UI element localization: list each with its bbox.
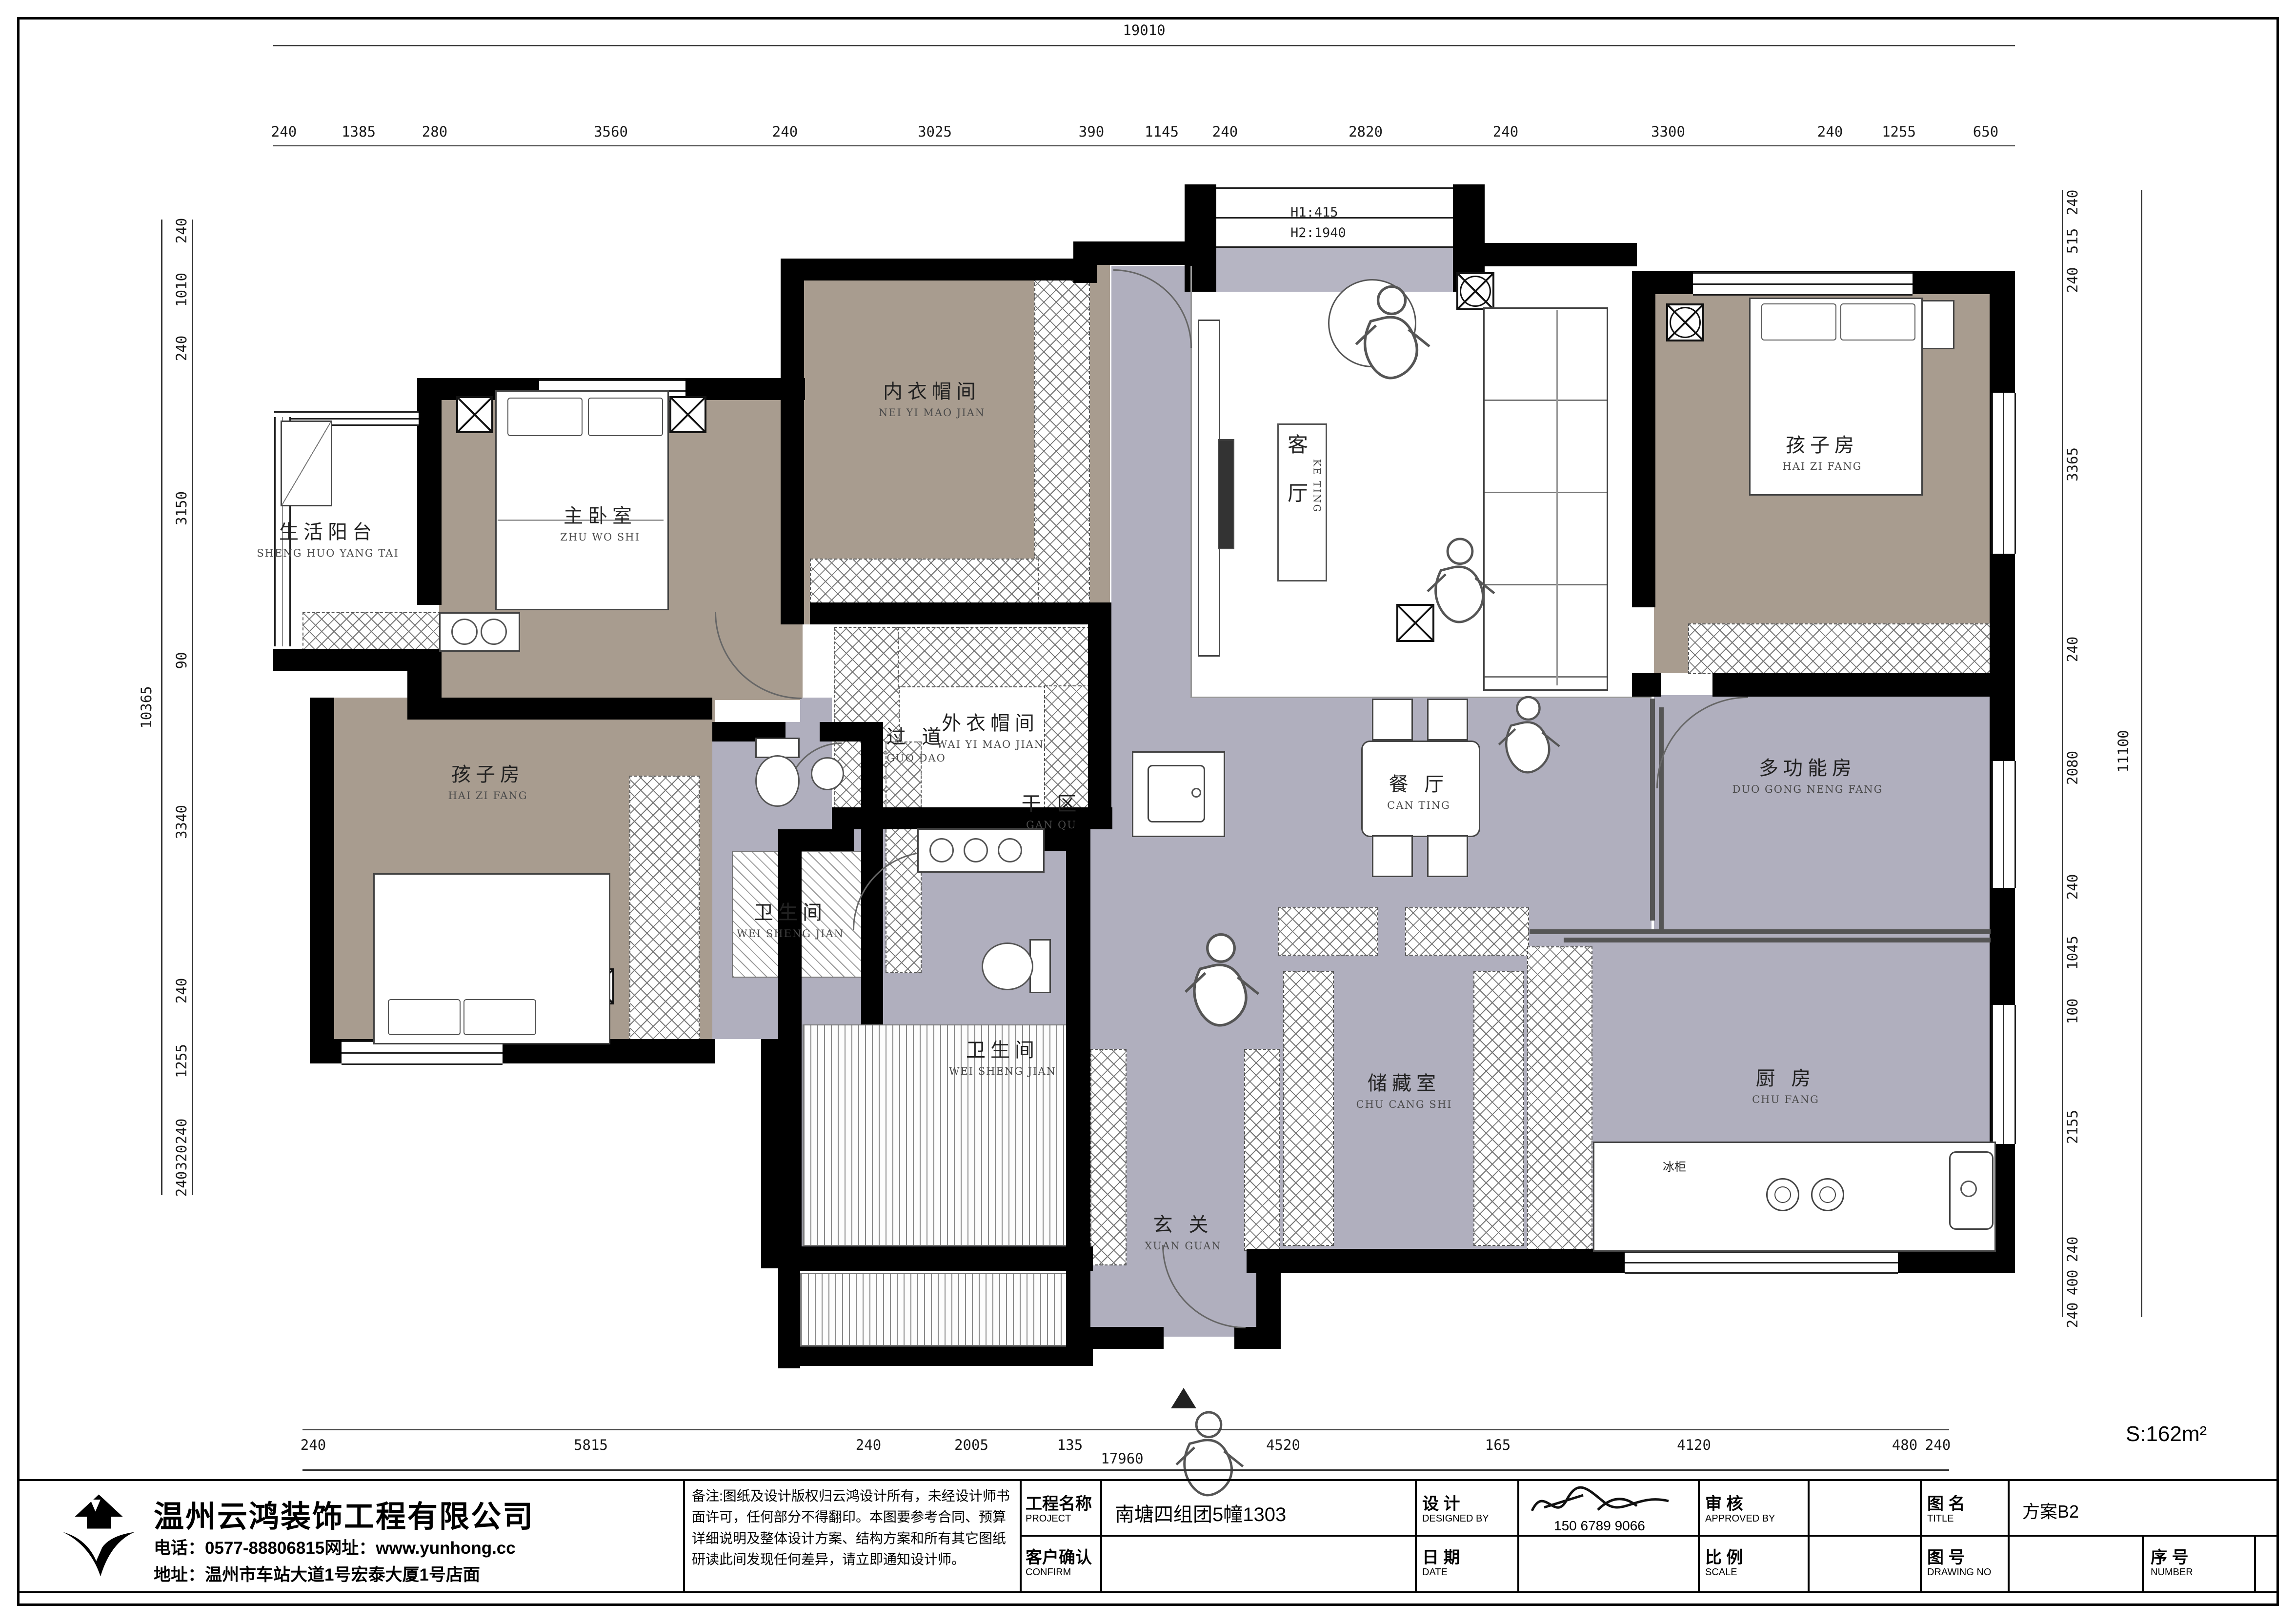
room-label: 过 道GUO DAO <box>886 721 947 764</box>
dimension-line <box>2062 190 2063 1317</box>
balcony-cabinet <box>281 421 332 506</box>
room-label: 干 区GAN QU <box>1022 788 1082 831</box>
faucet <box>1960 1181 1977 1197</box>
dimension-value: 90 <box>173 652 190 669</box>
wall-segment <box>1632 271 1655 607</box>
circle-cross-symbol <box>1456 272 1494 310</box>
dimension-line <box>192 220 193 1195</box>
dimension-value: 2155 <box>2064 1110 2081 1144</box>
dimension-value: 4520 <box>1266 1437 1300 1453</box>
room-label: 餐 厅CAN TING <box>1387 768 1450 811</box>
approve-label-en: APPROVED BY <box>1705 1513 1775 1524</box>
room-name: 储藏室 <box>1356 1067 1452 1096</box>
project-value: 南塘四组团5幢1303 <box>1115 1499 1286 1527</box>
room-name: 卫生间 <box>737 897 844 925</box>
room-pinyin: ZHU WO SHI <box>560 531 640 543</box>
person-figure <box>1483 693 1573 788</box>
room-pinyin: GUO DAO <box>886 752 947 764</box>
design-label: 设 计 <box>1422 1490 1460 1514</box>
cabinet-hatch <box>1473 971 1524 1246</box>
dimension-value: 240 <box>271 123 297 140</box>
sliding-door <box>1564 938 1991 942</box>
wall-segment <box>1247 1249 1539 1273</box>
scale-label: 比 例 <box>1705 1544 1743 1568</box>
room-pinyin: CAN TING <box>1387 800 1450 811</box>
dimension-value: 320 <box>173 1145 190 1170</box>
window <box>1625 1251 1898 1274</box>
dimension-value: 3150 <box>173 491 190 525</box>
company-address: 地址：温州市车站大道1号宏泰大厦1号店面 <box>154 1561 480 1586</box>
dimension-line <box>273 145 2015 146</box>
confirm-label-en: CONFIRM <box>1026 1567 1071 1578</box>
company-logo <box>56 1490 141 1581</box>
wall-segment <box>442 698 712 720</box>
dimension-value: 240 <box>1212 123 1238 140</box>
room-label: 生活阳台SHENG HUO YANG TAI <box>257 516 399 559</box>
dimension-value: 3560 <box>594 123 628 140</box>
dimension-value: 240 <box>2064 267 2081 293</box>
room-label: 孩子房HAI ZI FANG <box>1782 429 1862 472</box>
room-pinyin: XUAN GUAN <box>1145 1240 1222 1252</box>
confirm-label: 客户确认 <box>1026 1544 1092 1568</box>
room-pinyin: KE TING <box>1311 459 1323 514</box>
dining-chair <box>1372 699 1413 741</box>
cabinet-hatch <box>1278 907 1378 956</box>
person-figure <box>1168 929 1273 1044</box>
window <box>1992 1005 2016 1144</box>
room-pinyin: DUO GONG NENG FANG <box>1732 783 1883 795</box>
wall-segment <box>778 1246 1093 1271</box>
washer-drum <box>481 619 507 645</box>
pillow <box>463 999 536 1035</box>
tv-cabinet <box>1198 320 1220 657</box>
room-label-keting: 客 厅KE TING <box>1277 423 1327 581</box>
project-label: 工程名称 <box>1026 1490 1092 1514</box>
stove-burner <box>1811 1178 1844 1211</box>
nightstand <box>1921 300 1954 349</box>
dimension-value: 1255 <box>173 1044 190 1078</box>
wash-basin <box>811 757 844 790</box>
pillow <box>1840 303 1915 341</box>
window <box>1693 272 1913 296</box>
room-name: 孩子房 <box>1782 429 1862 458</box>
dimension-value: 1385 <box>342 123 376 140</box>
room-name: 卫生间 <box>949 1034 1056 1062</box>
cabinet-hatch <box>1405 907 1529 956</box>
dimension-value: 280 <box>422 123 447 140</box>
cabinet-hatch <box>810 559 1039 604</box>
dimension-value: 240 <box>173 218 190 243</box>
circle-cross-symbol <box>1666 303 1704 341</box>
window <box>1992 393 2016 554</box>
pillow <box>507 398 583 436</box>
dimension-value: 390 <box>1079 123 1104 140</box>
dimension-value: 165 <box>1485 1437 1511 1453</box>
room-label: 卫生间WEI SHENG JIAN <box>737 897 844 940</box>
floor-edge-line <box>1190 697 1652 698</box>
dimension-value: 1010 <box>173 273 190 307</box>
room-label: 储藏室CHU CANG SHI <box>1356 1067 1452 1110</box>
dimension-value: 240 <box>173 1171 190 1197</box>
room-pinyin: GAN QU <box>1022 819 1082 831</box>
dimension-value: 240 <box>2064 1302 2081 1328</box>
cabinet-hatch <box>1527 946 1592 1251</box>
dimension-line <box>161 220 162 1195</box>
room-name: 餐 厅 <box>1387 768 1450 797</box>
wall-segment <box>1632 673 1661 697</box>
basin <box>964 838 988 862</box>
pillow <box>1761 303 1836 341</box>
wall-segment <box>778 1346 1093 1366</box>
number-label-en: NUMBER <box>2151 1567 2193 1578</box>
wall-segment <box>1088 602 1111 829</box>
dimension-value: 4120 <box>1677 1437 1711 1453</box>
wall-segment <box>1483 243 1637 266</box>
stove-burner <box>1766 1178 1799 1211</box>
dimension-value: 480 <box>1892 1437 1917 1453</box>
bay-height-annotation-1: H1:415 <box>1290 205 1338 220</box>
room-pinyin: WEI SHENG JIAN <box>949 1065 1056 1077</box>
designer-signature <box>1525 1481 1676 1522</box>
drawingno-label: 图 号 <box>1927 1544 1965 1568</box>
room-label: 厨 房CHU FANG <box>1752 1062 1819 1105</box>
sliding-door <box>1659 707 1664 929</box>
cross-box-symbol <box>669 396 706 433</box>
door-handle <box>1191 788 1201 798</box>
date-label-en: DATE <box>1422 1567 1448 1578</box>
wall-segment <box>1185 184 1216 292</box>
designer-phone: 150 6789 9066 <box>1554 1518 1645 1534</box>
wall-segment <box>778 829 802 1271</box>
dimension-value: 240 <box>173 978 190 1003</box>
cabinet-hatch <box>302 612 441 651</box>
dimension-value: 11100 <box>2115 730 2132 772</box>
person-figure <box>1339 281 1444 398</box>
room-label: 玄 关XUAN GUAN <box>1145 1209 1222 1252</box>
title-value: 方案B2 <box>2022 1498 2079 1523</box>
dimension-value: 400 <box>2064 1270 2081 1295</box>
company-phone-web: 电话：0577-88806815网址：www.yunhong.cc <box>154 1534 516 1559</box>
dimension-value: 10365 <box>138 686 155 728</box>
entry-arrow <box>1171 1388 1196 1408</box>
dining-chair <box>1427 835 1468 877</box>
room-label: 卫生间WEI SHENG JIAN <box>949 1034 1056 1077</box>
wall-segment <box>1712 673 1993 697</box>
design-label-en: DESIGNED BY <box>1422 1513 1489 1524</box>
tv-screen <box>1218 439 1234 549</box>
notes-text: 备注:图纸及设计版权归云鸿设计所有，未经设计师书面许可，任何部分不得翻印。本图要… <box>692 1485 1014 1570</box>
dimension-value: 240 <box>2064 637 2081 662</box>
wall-segment <box>417 378 442 605</box>
room-name: 干 区 <box>1022 788 1082 816</box>
room-name: 厨 房 <box>1752 1062 1819 1091</box>
circle-icon <box>1460 276 1491 307</box>
dimension-value: 240 <box>1817 123 1843 140</box>
dimension-value: 3025 <box>918 123 952 140</box>
toilet-bowl <box>755 755 800 807</box>
wall-segment <box>407 649 442 720</box>
dimension-value: 2080 <box>2064 751 2081 785</box>
dimension-value: 1145 <box>1145 123 1179 140</box>
wall-segment <box>1066 829 1090 1271</box>
dimension-value: 2820 <box>1349 123 1383 140</box>
room-label: 多功能房DUO GONG NENG FANG <box>1732 752 1883 795</box>
room-name: 孩子房 <box>448 759 527 787</box>
room-name: 主卧室 <box>560 500 640 528</box>
room-pinyin: SHENG HUO YANG TAI <box>257 547 399 559</box>
dimension-value: 17960 <box>1101 1450 1143 1467</box>
toilet-bowl <box>982 942 1033 990</box>
scale-label-en: SCALE <box>1705 1567 1737 1578</box>
dimension-value: 3340 <box>173 805 190 839</box>
basin <box>998 838 1022 862</box>
dimension-value: 240 <box>856 1437 881 1453</box>
dimension-value: 3300 <box>1651 123 1685 140</box>
room-pinyin: WAI YI MAO JIAN <box>937 739 1044 750</box>
dimension-value: 240 <box>1493 123 1518 140</box>
bay-height-annotation-2: H2:1940 <box>1290 225 1346 240</box>
wall-segment <box>800 829 854 851</box>
room-pinyin: NEI YI MAO JIAN <box>879 407 985 419</box>
cabinet-hatch <box>1244 1049 1280 1251</box>
dimension-value: 5815 <box>574 1437 608 1453</box>
room-name: 玄 关 <box>1145 1209 1222 1237</box>
pillow <box>588 398 663 436</box>
dimension-value: 1255 <box>1882 123 1916 140</box>
tv-wall-line <box>1190 266 1192 698</box>
dining-chair <box>1427 699 1468 741</box>
wall-segment <box>1066 1327 1164 1349</box>
wall-segment <box>1234 1327 1281 1349</box>
cross-box-symbol <box>456 396 493 433</box>
wall-segment <box>273 649 420 671</box>
room-pinyin: CHU FANG <box>1752 1094 1819 1105</box>
dimension-value: 240 <box>1925 1437 1951 1453</box>
circle-icon <box>1670 307 1701 338</box>
louver-balcony <box>800 1273 1090 1346</box>
dimension-line <box>302 1469 1949 1471</box>
wall-segment <box>781 259 1095 281</box>
room-name: 多功能房 <box>1732 752 1883 781</box>
title-label-en: TITLE <box>1927 1513 1954 1524</box>
dimension-line <box>2141 190 2142 1317</box>
dimension-value: 1045 <box>2064 936 2081 970</box>
dining-chair <box>1372 835 1413 877</box>
dimension-value: 2005 <box>954 1437 988 1453</box>
number-label: 序 号 <box>2151 1544 2188 1568</box>
dimension-value: 515 <box>2064 228 2081 254</box>
basin <box>929 838 954 862</box>
cabinet-hatch <box>1688 623 1993 674</box>
window <box>1992 761 2016 888</box>
dimension-value: 240 <box>173 336 190 361</box>
room-pinyin: WEI SHENG JIAN <box>737 928 844 940</box>
dimension-value: 240 <box>2064 190 2081 215</box>
room-pinyin: HAI ZI FANG <box>448 790 527 801</box>
wall-segment <box>310 698 334 1063</box>
company-name: 温州云鸿装饰工程有限公司 <box>154 1492 534 1536</box>
cabinet-hatch <box>629 776 700 1041</box>
room-name: 外衣帽间 <box>937 707 1044 736</box>
date-label: 日 期 <box>1422 1544 1460 1568</box>
room-label: 内衣帽间NEI YI MAO JIAN <box>879 376 985 419</box>
dimension-value: 240 <box>772 123 798 140</box>
room-pinyin: CHU CANG SHI <box>1356 1099 1452 1110</box>
project-label-en: PROJECT <box>1026 1513 1071 1524</box>
person-figure <box>1410 534 1510 639</box>
drawing-sheet: 生活阳台SHENG HUO YANG TAI主卧室ZHU WO SHI内衣帽间N… <box>0 0 2296 1623</box>
pillow <box>388 999 461 1035</box>
dimension-line <box>273 45 2015 46</box>
dimension-value: 3365 <box>2064 447 2081 481</box>
room-label: 孩子房HAI ZI FANG <box>448 759 527 801</box>
sliding-door <box>1530 929 1991 934</box>
dimension-value: 240 <box>2064 1237 2081 1262</box>
cabinet-hatch <box>898 627 1109 687</box>
dimension-value: 240 <box>173 1119 190 1144</box>
dimension-value: 100 <box>2064 999 2081 1024</box>
room-name: 客 厅 <box>1282 434 1311 513</box>
area-label: S:162m² <box>2126 1422 2207 1446</box>
dimension-value: 19010 <box>1123 22 1165 39</box>
approve-label: 审 核 <box>1705 1490 1743 1514</box>
burner-inner <box>1819 1186 1836 1203</box>
room-label: 外衣帽间WAI YI MAO JIAN <box>937 707 1044 750</box>
washer-drum <box>451 619 478 645</box>
room-name: 内衣帽间 <box>879 376 985 404</box>
wall-segment <box>810 602 1110 624</box>
cabinet-hatch <box>1283 971 1334 1246</box>
room-name: 过 道 <box>886 721 947 749</box>
title-label: 图 名 <box>1927 1490 1965 1514</box>
wall-segment <box>781 259 804 624</box>
dimension-line <box>302 1429 1949 1430</box>
dimension-value: 650 <box>1973 123 1998 140</box>
room-label: 主卧室ZHU WO SHI <box>560 500 640 543</box>
room-name: 生活阳台 <box>257 516 399 544</box>
cabinet-hatch <box>1090 1049 1127 1265</box>
drawingno-label-en: DRAWING NO <box>1927 1567 1991 1578</box>
fridge-annotation: 冰柜 <box>1663 1157 1686 1174</box>
burner-inner <box>1774 1186 1792 1203</box>
sofa-back-line <box>1556 310 1558 685</box>
sliding-door <box>1650 699 1655 921</box>
room-pinyin: HAI ZI FANG <box>1782 461 1862 472</box>
dimension-value: 240 <box>2064 874 2081 900</box>
cabinet-hatch <box>1034 273 1090 604</box>
dimension-value: 135 <box>1057 1437 1083 1453</box>
dimension-value: 240 <box>301 1437 326 1453</box>
wall-segment <box>1073 241 1193 265</box>
